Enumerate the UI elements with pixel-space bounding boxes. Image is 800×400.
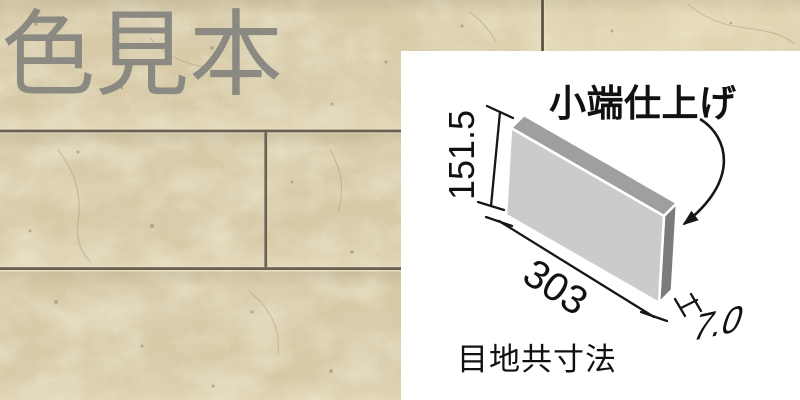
edge-finish-label: 小端仕上げ xyxy=(549,73,737,127)
height-dimension-line xyxy=(491,112,500,206)
spec-panel: 小端仕上げ 151.5 303 7.0 目地共寸法 xyxy=(401,51,800,400)
color-sample-label: 色見本 xyxy=(1,6,283,104)
joint-note-label: 目地共寸法 xyxy=(457,334,617,379)
tile-color-sample-image: 色見本 xyxy=(0,0,800,400)
edge-finish-arrow xyxy=(684,119,724,224)
height-dimension-value: 151.5 xyxy=(441,110,483,200)
